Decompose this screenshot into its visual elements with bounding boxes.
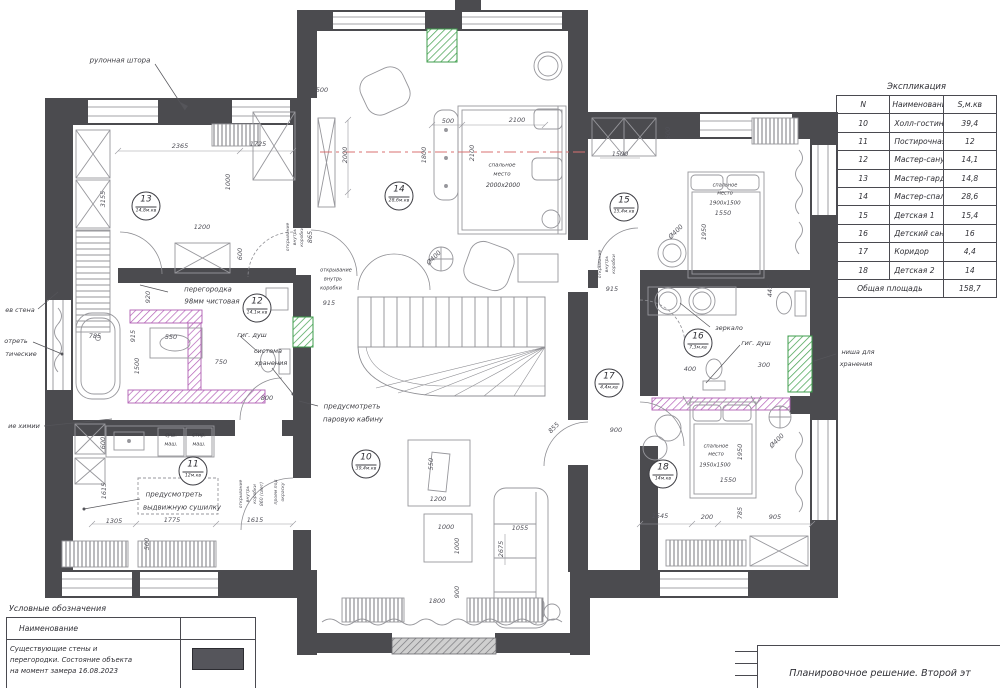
plan-label: ниша для — [841, 349, 874, 356]
plan-label: место — [493, 172, 510, 178]
dim-label: открывание — [599, 250, 604, 279]
explication-cell: Детский санузел — [890, 224, 943, 242]
dim-label: 2000 — [342, 147, 349, 164]
dim-label: коробки — [613, 254, 618, 274]
legend-table: Наименование Существующие стены и перего… — [6, 617, 256, 688]
dim-label: 800 — [261, 395, 273, 402]
explication-cell: 39,4 — [943, 114, 996, 132]
dim-label: 445 — [767, 285, 774, 297]
total-label: Общая площадь — [837, 279, 944, 297]
dim-label: 1000 — [438, 524, 455, 531]
plan-label: суш. — [165, 434, 177, 439]
dim-label: внутрь — [294, 229, 299, 245]
explication-cell: Детская 2 — [890, 261, 943, 279]
plan-label: хранения — [840, 361, 873, 368]
explication-cell: 4,4 — [943, 243, 996, 261]
plan-label: коробки — [320, 287, 342, 292]
dim-label: 500 — [442, 118, 454, 125]
explication-header-row: N Наименование S,м.кв — [837, 96, 997, 114]
explication-row: 15Детская 115,4 — [837, 206, 997, 224]
room-badge-13: 1314,8м.кв — [132, 192, 161, 221]
explication-cell: 18 — [837, 261, 890, 279]
explication-cell: 28,6 — [943, 187, 996, 205]
dim-label: 400 — [684, 366, 696, 373]
dim-label: внутрь — [247, 486, 252, 502]
plan-label: выдвижную сушилку — [143, 505, 221, 512]
plan-label: паровую кабину — [323, 417, 383, 424]
explication-cell: 14 — [943, 261, 996, 279]
plan-label: гиг. душ — [237, 332, 266, 339]
explication-cell: 13 — [837, 169, 890, 187]
room-area: 14,8м.кв — [133, 208, 160, 216]
plan-label: зеркало — [715, 325, 743, 332]
explication-cell: Коридор — [890, 243, 943, 261]
legend-title: Условные обозначения — [9, 604, 256, 613]
dim-label: 1725 — [250, 141, 267, 148]
dim-label: 2365 — [172, 143, 189, 150]
dim-label: 600 — [237, 248, 244, 260]
explication-row: 10Холл-гостиная39,4 — [837, 114, 997, 132]
dim-label: 860 (свет) — [261, 482, 266, 506]
room-area: 14,1м.кв — [244, 310, 271, 318]
col-header-n: N — [837, 96, 890, 114]
room-number: 13 — [135, 193, 156, 208]
explication-cell: 15 — [837, 206, 890, 224]
plan-label: 1900х1500 — [709, 201, 740, 207]
plan-label: спальное — [704, 445, 729, 450]
existing-wall-swatch — [192, 648, 244, 670]
room-number: 18 — [652, 461, 673, 476]
plan-label: хранения — [255, 360, 288, 367]
explication-cell: Мастер-санузел — [890, 151, 943, 169]
dim-label: 600 — [665, 127, 672, 139]
explication-row: 12Мастер-санузел14,1 — [837, 151, 997, 169]
explication-table: Экспликация N Наименование S,м.кв 10Холл… — [836, 82, 997, 298]
room-number: 17 — [598, 370, 619, 385]
plan-label: спальное — [713, 184, 738, 189]
dim-label: коробки — [301, 227, 306, 247]
plan-label: 98мм чистовая — [184, 299, 239, 306]
room-area: 4,4м.кв — [596, 385, 623, 393]
room-badge-15: 1515,4м.кв — [610, 193, 639, 222]
explication-cell: Мастер-гардероб — [890, 169, 943, 187]
dim-label: Ø400 — [668, 224, 685, 241]
plan-label: 2000х2000 — [486, 183, 520, 189]
explication-row: 11Постирочная12 — [837, 132, 997, 150]
plan-label: 1950х1500 — [699, 463, 730, 469]
dim-label: 750 — [215, 359, 227, 366]
plan-label: перегородка — [184, 287, 232, 294]
explication-row: 16Детский санузел16 — [837, 224, 997, 242]
plan-label: система — [254, 348, 282, 355]
plan-label: внутрь — [324, 278, 342, 283]
dim-label: внутрь — [606, 256, 611, 272]
explication-cell: 16 — [943, 224, 996, 242]
sheet-title: Планировочное решение. Второй эт — [762, 668, 998, 679]
dim-label: проем под — [275, 480, 280, 505]
plan-label: открывание — [320, 269, 352, 274]
explication-cell: 15,4 — [943, 206, 996, 224]
dim-label: открывание — [240, 480, 245, 509]
dim-label: 500 — [144, 538, 151, 550]
room-area: 7,3м.кв — [685, 345, 712, 353]
explication-cell: 14,1 — [943, 151, 996, 169]
dim-label: 915 — [323, 300, 335, 307]
dim-label: 2675 — [498, 541, 505, 558]
room-badge-14: 1428,6м.кв — [385, 182, 414, 211]
dim-label: 855 — [547, 421, 560, 434]
dim-label: 2100 — [469, 145, 476, 162]
room-number: 15 — [613, 194, 634, 209]
room-number: 11 — [182, 458, 203, 473]
dim-label: 1800 — [429, 598, 446, 605]
floor-plan-page: рулонная штораперегородка98мм чистоваяги… — [0, 0, 1000, 688]
plan-label: спальное — [488, 163, 515, 169]
dim-label: 1800 — [421, 147, 428, 164]
dim-label: 200 — [701, 514, 713, 521]
dim-label: 2100 — [509, 117, 526, 124]
legend-header: Наименование — [19, 624, 78, 633]
legend: Условные обозначения Наименование Сущест… — [6, 604, 256, 688]
explication-cell: 12 — [943, 132, 996, 150]
room-number: 16 — [687, 330, 708, 345]
room-area: 28,6м.кв — [386, 198, 413, 206]
room-badge-11: 1112м.кв — [179, 457, 208, 486]
room-area: 12м.кв — [180, 473, 207, 481]
dim-label: 300 — [758, 362, 770, 369]
room-badge-10: 1039,4м.кв — [352, 450, 381, 479]
col-header-area: S,м.кв — [943, 96, 996, 114]
dim-label: 785 — [737, 507, 744, 519]
plan-label: тические — [5, 351, 37, 358]
dim-label: 865 — [307, 231, 314, 243]
plan-label: гиг. душ — [741, 340, 770, 347]
room-number: 10 — [355, 451, 376, 466]
plan-label: ие химии — [8, 423, 40, 430]
dim-label: открывание — [287, 223, 292, 252]
dim-label: 1200 — [430, 496, 447, 503]
room-number: 14 — [388, 183, 409, 198]
dim-label: 900 — [454, 586, 461, 598]
plan-label: отреть — [4, 338, 28, 345]
room-badge-12: 1214,1м.кв — [243, 294, 272, 323]
dim-label: 785 — [89, 333, 101, 340]
dim-label: 1000 — [454, 538, 461, 555]
dim-label: 900 — [610, 427, 622, 434]
explication-row: 13Мастер-гардероб14,8 — [837, 169, 997, 187]
explication-row: 17Коридор4,4 — [837, 243, 997, 261]
dim-label: 3155 — [100, 191, 107, 208]
plan-label: маш. — [164, 443, 177, 448]
dim-label: 1550 — [715, 210, 732, 217]
plan-label: место — [708, 453, 724, 458]
room-badge-18: 1814м.кв — [649, 460, 678, 489]
dim-label: 915 — [130, 330, 137, 342]
room-area: 14м.кв — [650, 476, 677, 484]
dim-label: 1500 — [134, 358, 141, 375]
room-badge-17: 174,4м.кв — [595, 369, 624, 398]
plan-label: место — [717, 192, 733, 197]
dim-label: 550 — [165, 334, 177, 341]
dim-label: 905 — [769, 514, 781, 521]
dim-label: 500 — [316, 87, 328, 94]
explication-cell: 11 — [837, 132, 890, 150]
dim-label: 1305 — [106, 518, 123, 525]
explication-row: 14Мастер-спальня28,6 — [837, 187, 997, 205]
explication-cell: Мастер-спальня — [890, 187, 943, 205]
dim-label: 1550 — [720, 477, 737, 484]
dim-label: 920 — [145, 291, 152, 303]
total-value: 158,7 — [943, 279, 996, 297]
plan-label: маш. — [192, 443, 205, 448]
explication-total-row: Общая площадь 158,7 — [837, 279, 997, 297]
explication-title: Экспликация — [836, 82, 997, 92]
explication-cell: Холл-гостиная — [890, 114, 943, 132]
col-header-name: Наименование — [890, 96, 943, 114]
room-badge-16: 167,3м.кв — [684, 329, 713, 358]
explication-cell: 14,8 — [943, 169, 996, 187]
plan-label: ев стена — [5, 307, 35, 314]
explication-cell: 12 — [837, 151, 890, 169]
dim-label: 1775 — [164, 517, 181, 524]
explication-cell: Постирочная — [890, 132, 943, 150]
plan-label: рулонная штора — [90, 58, 151, 65]
dim-label: 1950 — [701, 224, 708, 241]
dim-label: 915 — [606, 286, 618, 293]
dim-label: 1615 — [101, 483, 108, 500]
dim-label: 1615 — [247, 517, 264, 524]
room-area: 39,4м.кв — [353, 466, 380, 474]
room-area: 15,4м.кв — [611, 209, 638, 217]
plan-label: предусмотреть — [324, 404, 381, 411]
room-number: 12 — [246, 295, 267, 310]
dim-label: 1950 — [737, 444, 744, 461]
dim-label: 550 — [428, 458, 435, 470]
dim-label: окраску — [282, 483, 287, 502]
dim-label: 1055 — [512, 525, 529, 532]
explication-cell: 10 — [837, 114, 890, 132]
dim-label: 1545 — [652, 513, 669, 520]
explication-row: 18Детская 214 — [837, 261, 997, 279]
plan-label: стир. — [192, 434, 206, 439]
explication-cell: 16 — [837, 224, 890, 242]
dim-label: Ø400 — [426, 250, 443, 267]
plan-label: предусмотреть — [146, 492, 203, 499]
dim-label: 1000 — [225, 174, 232, 191]
explication-cell: 14 — [837, 187, 890, 205]
legend-row-text: Существующие стены и перегородки. Состоя… — [7, 640, 180, 688]
explication-cell: 17 — [837, 243, 890, 261]
dim-label: коробки — [254, 484, 259, 504]
dim-label: Ø400 — [769, 433, 786, 450]
explication-cell: Детская 1 — [890, 206, 943, 224]
dim-label: 600 — [100, 437, 107, 449]
dim-label: 1500 — [612, 151, 629, 158]
dim-label: 1200 — [194, 224, 211, 231]
